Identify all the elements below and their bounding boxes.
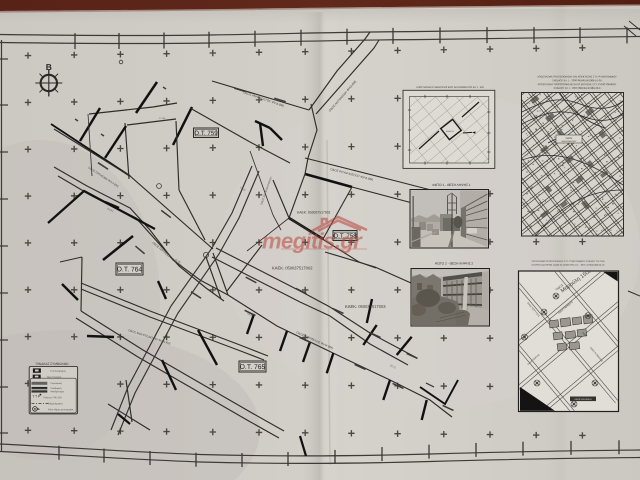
svg-text:O.T. 765: O.T. 765	[240, 364, 266, 371]
svg-text:Ρυμοτομική: Ρυμοτομική	[50, 382, 62, 385]
svg-text:ΚΑΕΚ: 050037517002: ΚΑΕΚ: 050037517002	[272, 266, 313, 271]
svg-text:O.T. 764: O.T. 764	[117, 266, 143, 273]
svg-text:ΘΡΑΣΥΒΟΥΛΟΥ: ΘΡΑΣΥΒΟΥΛΟΥ	[562, 140, 577, 143]
svg-text:Μανδρότοιχος: Μανδρότοιχος	[50, 390, 64, 393]
svg-text:ΚΑΕΚ: 050037517003: ΚΑΕΚ: 050037517003	[345, 304, 386, 309]
svg-text:ΠΙΝΑΚΑΣ ΣΥΜΒΟΛΩΝ: ΠΙΝΑΚΑΣ ΣΥΜΒΟΛΩΝ	[36, 362, 70, 366]
svg-text:megitis.gr: megitis.gr	[262, 229, 363, 254]
svg-text:ΣΧΕΔΙΟΥ ΧΛ 1 : 2000 ΦΕΚ/ΕΔ4/19: ΣΧΕΔΙΟΥ ΧΛ 1 : 2000 ΦΕΚ/ΕΔ4/1983-29-3	[554, 87, 601, 90]
svg-text:ΑΠΟΣΠΑΣΜΑ ΚΤΗΜΑΤΟΛΟΓΙΚΟΥ ΔΙΑΓΡ: ΑΠΟΣΠΑΣΜΑ ΚΤΗΜΑΤΟΛΟΓΙΚΟΥ ΔΙΑΓΡΑΜΜΑΤΟΣ ΚΛ…	[416, 86, 484, 89]
svg-text:ΚΑΕΚ: 050037517001: ΚΑΕΚ: 050037517001	[297, 211, 331, 215]
svg-text:27.005: 27.005	[159, 118, 166, 120]
svg-text:Θέση λήψης φωτογραφίας: Θέση λήψης φωτογραφίας	[48, 408, 74, 411]
svg-text:ΟΔΟΣ: ΟΔΟΣ	[566, 137, 573, 140]
svg-text:ΑΠΟΣΠΑΣΜΑ ΤΡΟΠΟΠΟΙΗΣΗΣ ΚΑΙ Ο Ε: ΑΠΟΣΠΑΣΜΑ ΤΡΟΠΟΠΟΙΗΣΗΣ ΚΑΙ Ο ΕΚΤΑΣΗΣ ΣΤΥ…	[538, 83, 617, 86]
svg-text:ΣΧΕΔΙΟΥ ΧΛ. 1 : 2000 ΦΕΚ/ΕΔ4/1: ΣΧΕΔΙΟΥ ΧΛ. 1 : 2000 ΦΕΚ/ΕΔ4/1985-Δ1-05	[552, 79, 602, 82]
svg-text:Τ Τ Ρ: Τ Τ Ρ	[32, 395, 40, 399]
svg-text:Νέος Κτιριακός: Νέος Κτιριακός	[47, 376, 62, 379]
svg-text:ΕΓΚΡΙΣΗ ΔΙΑΤΗΡΩΝ ΟΔΩΝ ΣΕ ΔΗΜΟΤ: ΕΓΚΡΙΣΗ ΔΙΑΤΗΡΩΝ ΟΔΩΝ ΣΕ ΔΗΜΟΤΡΙΑ Ο.Τ. -…	[532, 264, 605, 267]
svg-text:ΑΠΟΣΠΑΣΜΑ ΤΡΟΠΟΠΟΙΗΣΗΣ ΣΤΥ. ΡΥ: ΑΠΟΣΠΑΣΜΑ ΤΡΟΠΟΠΟΙΗΣΗΣ ΣΤΥ. ΡΥΜΟΤΟΜΙΚΟΥ …	[532, 260, 605, 263]
svg-text:B: B	[46, 62, 52, 72]
svg-text:05003751: 05003751	[446, 131, 454, 133]
svg-text:Υπό Κατάργηση: Υπό Κατάργηση	[50, 370, 66, 373]
svg-text:ΦΩΤΟ 1 - ΘΕΣΗ ΛΗΨΗΣ 1: ΦΩΤΟ 1 - ΘΕΣΗ ΛΗΨΗΣ 1	[432, 183, 471, 187]
svg-text:O.T. 759: O.T. 759	[194, 130, 218, 137]
svg-text:ΦΩΤΟ 2 - ΘΕΣΗ ΛΗΨΗΣ 2: ΦΩΤΟ 2 - ΘΕΣΗ ΛΗΨΗΣ 2	[435, 261, 474, 265]
svg-text:Σιδηροδρομική: Σιδηροδρομική	[48, 402, 63, 405]
svg-text:ΑΧΕΙΡ ΒΛΑΧΑΚΗ: ΑΧΕΙΡ ΒΛΑΧΑΚΗ	[574, 398, 592, 401]
svg-text:ΑΠΟΣΠΑΣΜΑ ΤΡΟΠΟΠΟΙΗΣΗΣ ΚΑΙ ΕΠΕ: ΑΠΟΣΠΑΣΜΑ ΤΡΟΠΟΠΟΙΗΣΗΣ ΚΑΙ ΕΠΕΚΤΑΣΗΣ ΣΤΥ…	[537, 75, 617, 78]
svg-text:Οικοδομική: Οικοδομική	[50, 387, 62, 390]
svg-text:Κολώνες ΥΠΕ ΔΕΗ: Κολώνες ΥΠΕ ΔΕΗ	[43, 396, 62, 399]
